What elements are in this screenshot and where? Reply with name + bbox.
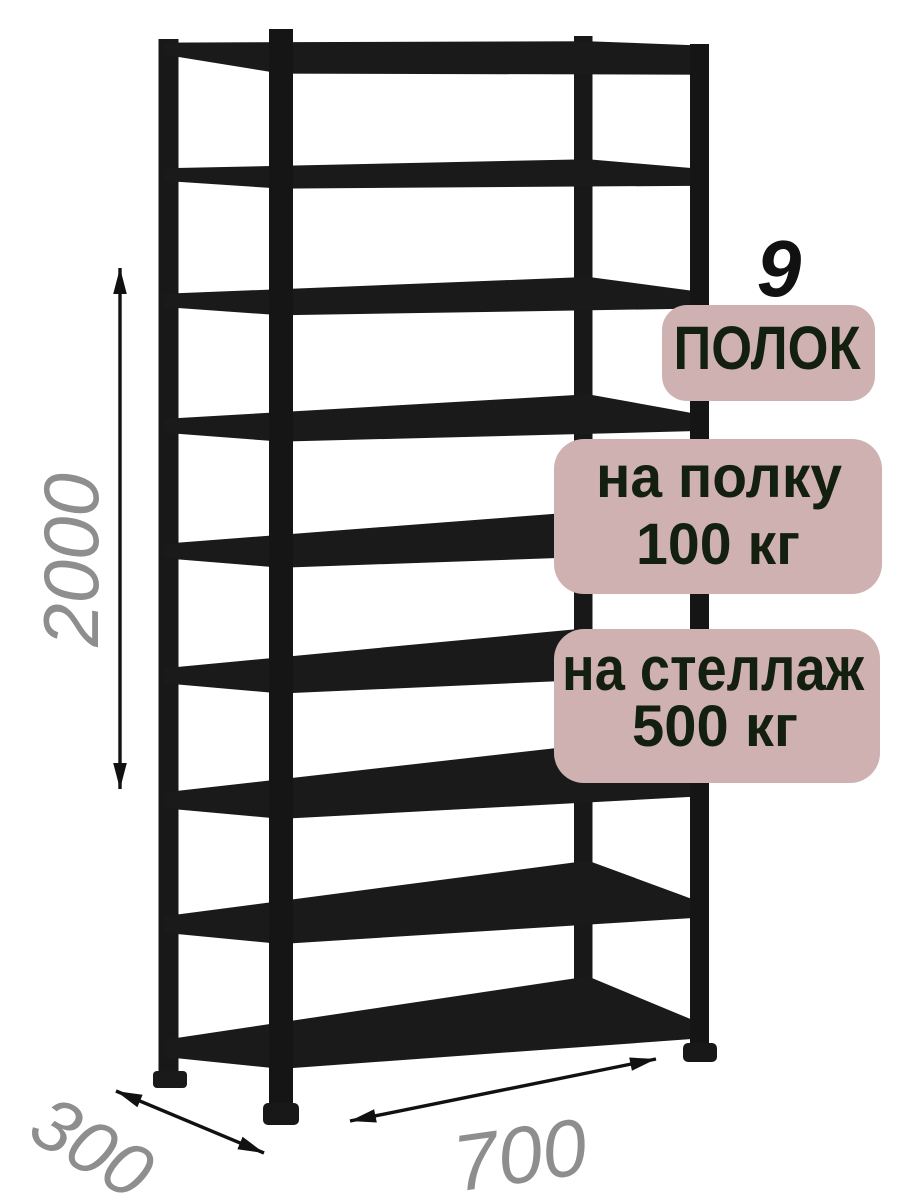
svg-text:9: 9: [757, 224, 802, 313]
svg-text:700: 700: [448, 1102, 593, 1200]
svg-text:2000: 2000: [27, 473, 115, 648]
svg-text:100 кг: 100 кг: [636, 512, 800, 577]
svg-text:ПОЛОК: ПОЛОК: [674, 314, 862, 382]
svg-text:500 кг: 500 кг: [632, 694, 798, 759]
svg-text:на полку: на полку: [596, 444, 842, 510]
